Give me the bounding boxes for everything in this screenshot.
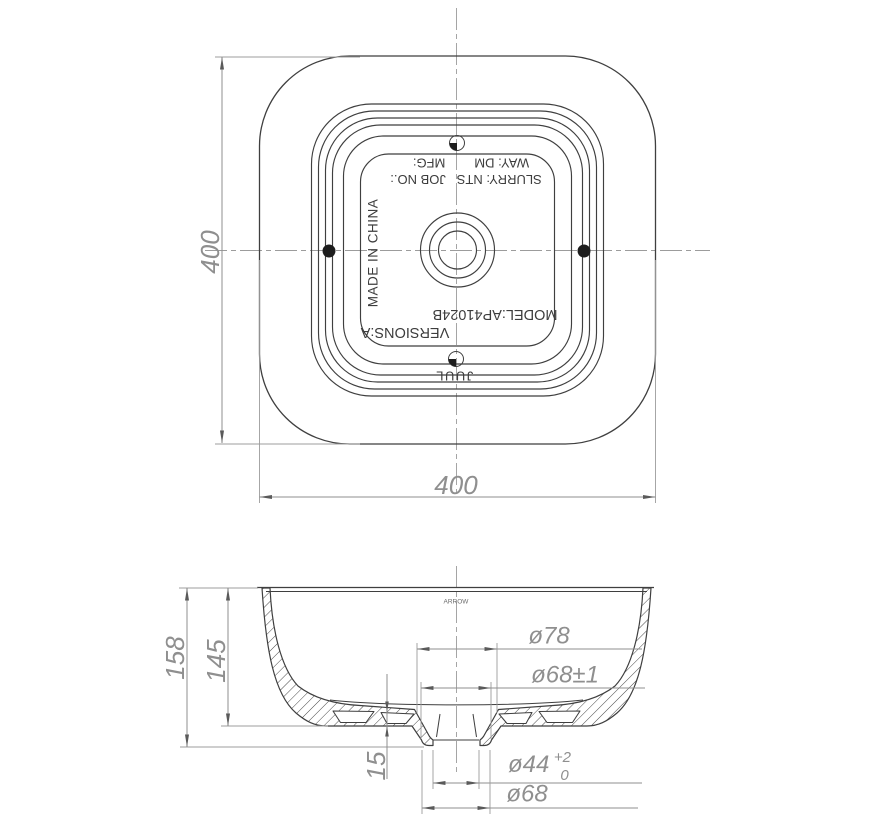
arrow-marking-label: ARROW <box>444 599 470 606</box>
bowl-height-label: 145 <box>201 639 231 683</box>
left-foot-groove-outer <box>333 711 374 723</box>
drain-recess-circle <box>421 213 495 287</box>
base-thickness-label: 15 <box>361 751 391 780</box>
base-thickness-dimension: 15 <box>361 674 391 780</box>
stamp-slurry-job-text: SLURRY: NTS JOB NO.: <box>390 172 541 187</box>
top-view: WAY: DM MFG: SLURRY: NTS JOB NO.: MADE I… <box>195 8 710 503</box>
stamp-brand-text: JUUL <box>435 369 474 384</box>
top-view-width-label: 400 <box>434 470 478 500</box>
stamp-model-text: MODEL:AP41024B <box>433 306 558 322</box>
total-height-label: 158 <box>160 636 190 680</box>
drain-hole-circle <box>439 231 477 269</box>
drain-recess-back-edge-right <box>473 714 477 737</box>
drain-hole-dia-label: ø44 +2 0 <box>508 749 575 784</box>
drain-boss-dia-label: ø68 <box>506 781 548 808</box>
right-foot-groove-outer <box>539 711 580 723</box>
technical-drawing-canvas: WAY: DM MFG: SLURRY: NTS JOB NO.: MADE I… <box>0 0 877 828</box>
left-mount-dot <box>323 245 336 258</box>
top-datum-target <box>450 136 465 151</box>
drain-mid-circle <box>430 222 486 278</box>
right-mount-dot <box>578 245 591 258</box>
stamp-made-in-china-text: MADE IN CHINA <box>366 199 381 308</box>
drain-recess-back-edge-left <box>437 714 441 737</box>
stamp-versions-text: VERSIONS:A <box>360 324 449 340</box>
basin-drawing-svg: WAY: DM MFG: SLURRY: NTS JOB NO.: MADE I… <box>0 0 877 828</box>
top-view-height-label: 400 <box>195 230 225 274</box>
mid-recess-dia-label: ø68±1 <box>531 662 599 689</box>
stamp-way-mfg-text: WAY: DM MFG: <box>413 156 529 171</box>
section-view: ARROW 158 145 15 ø78 <box>160 566 654 814</box>
bottom-datum-target <box>449 352 464 367</box>
top-recess-dia-label: ø78 <box>528 623 570 650</box>
